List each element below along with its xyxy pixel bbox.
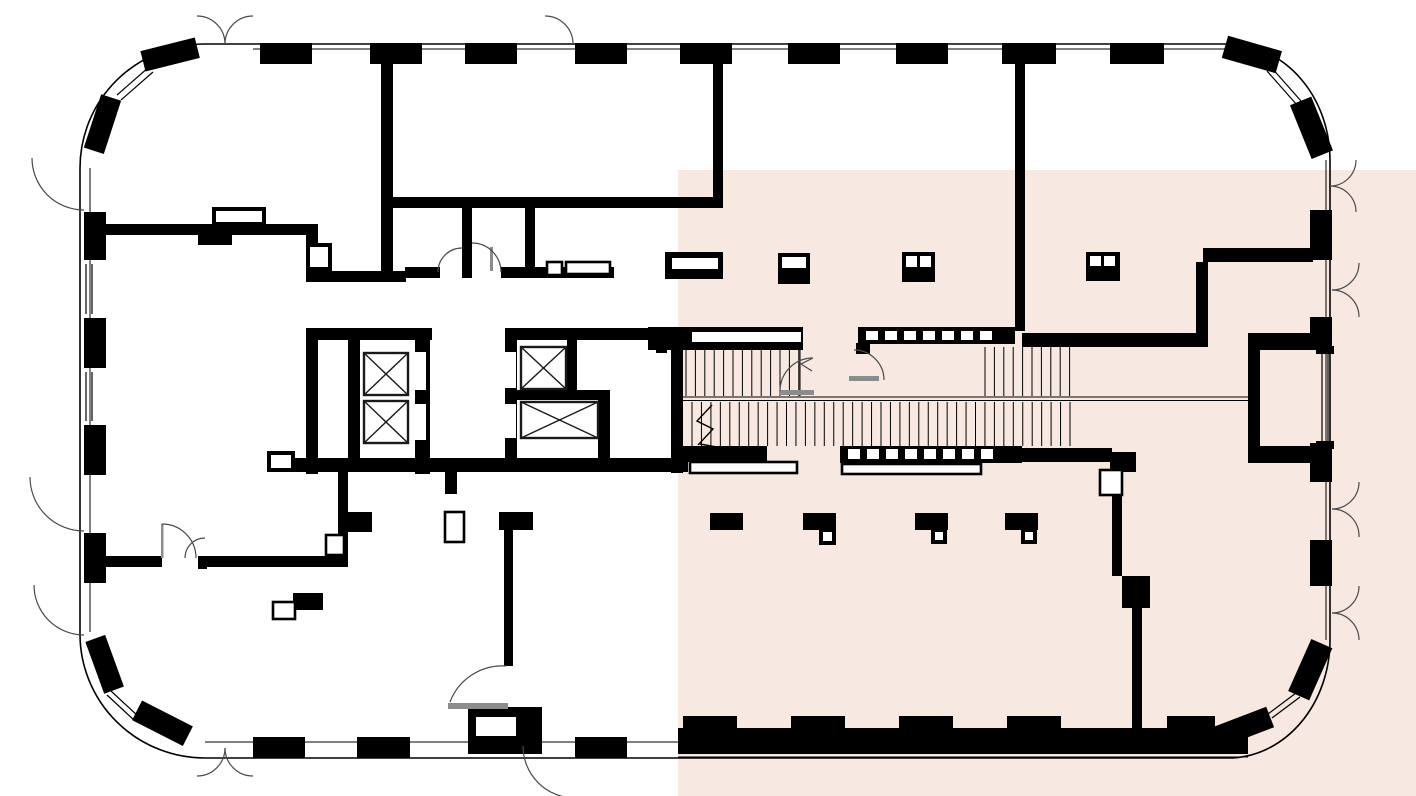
wall-pilaster (899, 716, 953, 730)
window-panel (84, 212, 106, 260)
floor-plan-page (0, 0, 1416, 796)
window-panel (575, 737, 627, 758)
window-panel (1110, 43, 1164, 64)
elevator-icon (521, 402, 598, 438)
wall-slot (943, 449, 955, 459)
wall-slot (961, 331, 973, 340)
wall-slot (886, 449, 898, 459)
window-panel (1310, 540, 1332, 586)
wall-pilaster (791, 716, 845, 730)
wall-slot (866, 331, 878, 340)
window-panel (84, 318, 106, 368)
window-panel (896, 43, 948, 64)
window-panels-top (260, 43, 1164, 64)
window-panel (84, 425, 106, 475)
wall-pilaster (1167, 716, 1215, 730)
wall-slot (904, 331, 916, 340)
wall-slot (962, 449, 974, 459)
wall-slot (924, 449, 936, 459)
wall-slot (942, 331, 954, 340)
window-panel (260, 43, 312, 64)
window-panel (680, 43, 732, 64)
wall-slot (980, 331, 992, 340)
window-panel (1002, 43, 1056, 64)
wall-slot (867, 449, 879, 459)
window-panel (1310, 210, 1332, 260)
bottom-wall-band (678, 728, 1248, 754)
window-panel (370, 43, 422, 64)
wall-pilaster (1007, 716, 1061, 730)
elevator-icon (521, 347, 566, 389)
wall-slot (923, 331, 935, 340)
window-panel (357, 737, 410, 758)
floor-plan-drawing (0, 0, 1416, 796)
wall-slot (885, 331, 897, 340)
window-panel (575, 43, 627, 64)
wall-slot (981, 449, 993, 459)
wall-pilaster (683, 716, 737, 730)
window-panel (1310, 317, 1332, 350)
window-panel (465, 43, 517, 64)
window-panel (253, 737, 305, 758)
wall-slot (905, 449, 917, 459)
window-panel (788, 43, 840, 64)
elevator-icon (364, 401, 408, 443)
wall-slot (848, 449, 860, 459)
elevator-icon (364, 353, 408, 395)
